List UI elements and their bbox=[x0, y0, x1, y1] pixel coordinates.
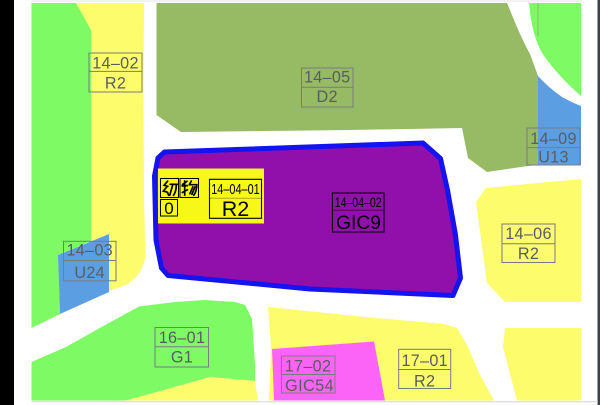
svg-text:R2: R2 bbox=[414, 372, 435, 390]
svg-text:14–04–01: 14–04–01 bbox=[211, 181, 260, 198]
svg-text:0: 0 bbox=[164, 199, 173, 218]
svg-text:17–01: 17–01 bbox=[401, 352, 448, 370]
svg-text:16–01: 16–01 bbox=[159, 329, 206, 347]
svg-text:R2: R2 bbox=[518, 245, 539, 263]
svg-text:GIC54: GIC54 bbox=[285, 377, 334, 395]
svg-text:14–02: 14–02 bbox=[92, 54, 139, 72]
svg-text:U13: U13 bbox=[538, 148, 569, 166]
svg-text:R2: R2 bbox=[105, 74, 126, 92]
svg-text:U24: U24 bbox=[74, 264, 105, 282]
svg-text:R2: R2 bbox=[222, 197, 249, 221]
svg-text:14–05: 14–05 bbox=[304, 69, 351, 87]
svg-text:GIC9: GIC9 bbox=[336, 212, 381, 234]
svg-text:G1: G1 bbox=[171, 349, 193, 367]
svg-text:14–09: 14–09 bbox=[530, 130, 577, 148]
svg-text:17–02: 17–02 bbox=[285, 358, 332, 376]
svg-text:14–03: 14–03 bbox=[66, 242, 113, 260]
svg-text:14–04–02: 14–04–02 bbox=[335, 195, 382, 210]
svg-text:14–06: 14–06 bbox=[505, 225, 552, 243]
svg-text:D2: D2 bbox=[317, 88, 338, 106]
